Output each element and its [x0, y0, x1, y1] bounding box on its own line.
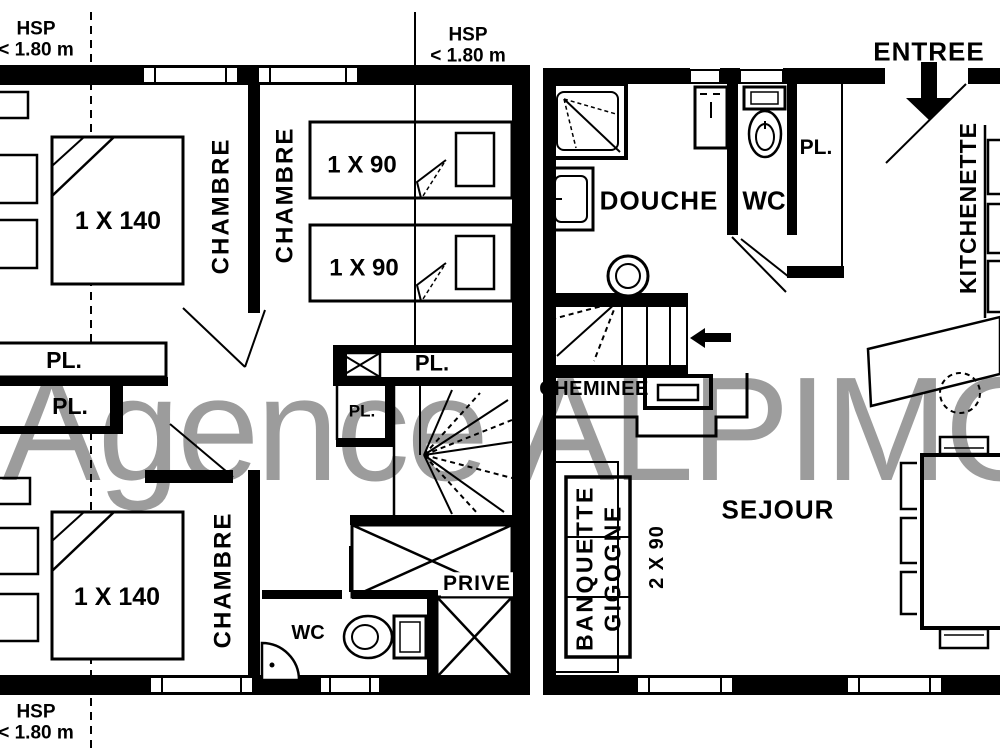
entry-label: ENTREE: [873, 37, 984, 66]
agency-watermark: Agence ALPIMO: [2, 356, 1000, 504]
hsp-note-top-center: HSP < 1.80 m: [430, 25, 506, 68]
bed-size-label: 1 X 90: [327, 153, 396, 180]
bed-size-label: 1 X 140: [74, 583, 160, 611]
hsp-title: HSP: [0, 702, 74, 723]
hsp-note-top-left: HSP < 1.80 m: [0, 19, 74, 62]
toilet-icon: [744, 87, 785, 157]
room-label-wc-upper: WC: [291, 622, 324, 644]
direction-arrow-icon: [690, 328, 731, 348]
toilet-icon: [344, 616, 426, 658]
hsp-title: HSP: [430, 25, 506, 46]
room-label-bedroom-3: CHAMBRE: [211, 512, 238, 649]
bed-size-label: 1 X 140: [75, 207, 161, 235]
room-label-douche: DOUCHE: [600, 186, 719, 215]
shower-icon: [549, 84, 626, 158]
hsp-note-bottom-left: HSP < 1.80 m: [0, 702, 74, 745]
room-label-bedroom-2: CHAMBRE: [273, 127, 300, 264]
kitchen-counter: [985, 125, 1000, 318]
entry-arrow-icon: [906, 62, 952, 120]
hsp-value: < 1.80 m: [0, 40, 74, 61]
room-label-bedroom-1: CHAMBRE: [209, 138, 236, 275]
room-label-kitchenette: KITCHENETTE: [956, 122, 982, 294]
hsp-value: < 1.80 m: [430, 46, 506, 67]
water-heater-icon: [695, 87, 727, 148]
corner-sink-icon: [262, 643, 299, 680]
round-basin-icon: [608, 256, 648, 296]
closet-label: PL.: [800, 136, 833, 160]
hsp-value: < 1.80 m: [0, 723, 74, 744]
bed-size-label: 1 X 90: [329, 256, 398, 283]
floor-plan-page: HSP < 1.80 m HSP < 1.80 m HSP < 1.80 m C…: [0, 0, 1000, 750]
room-label-wc-ground: WC: [742, 186, 785, 215]
hsp-title: HSP: [0, 19, 74, 40]
room-label-prive: PRIVE: [441, 572, 513, 596]
banquette-size-label: 2 X 90: [646, 525, 668, 589]
